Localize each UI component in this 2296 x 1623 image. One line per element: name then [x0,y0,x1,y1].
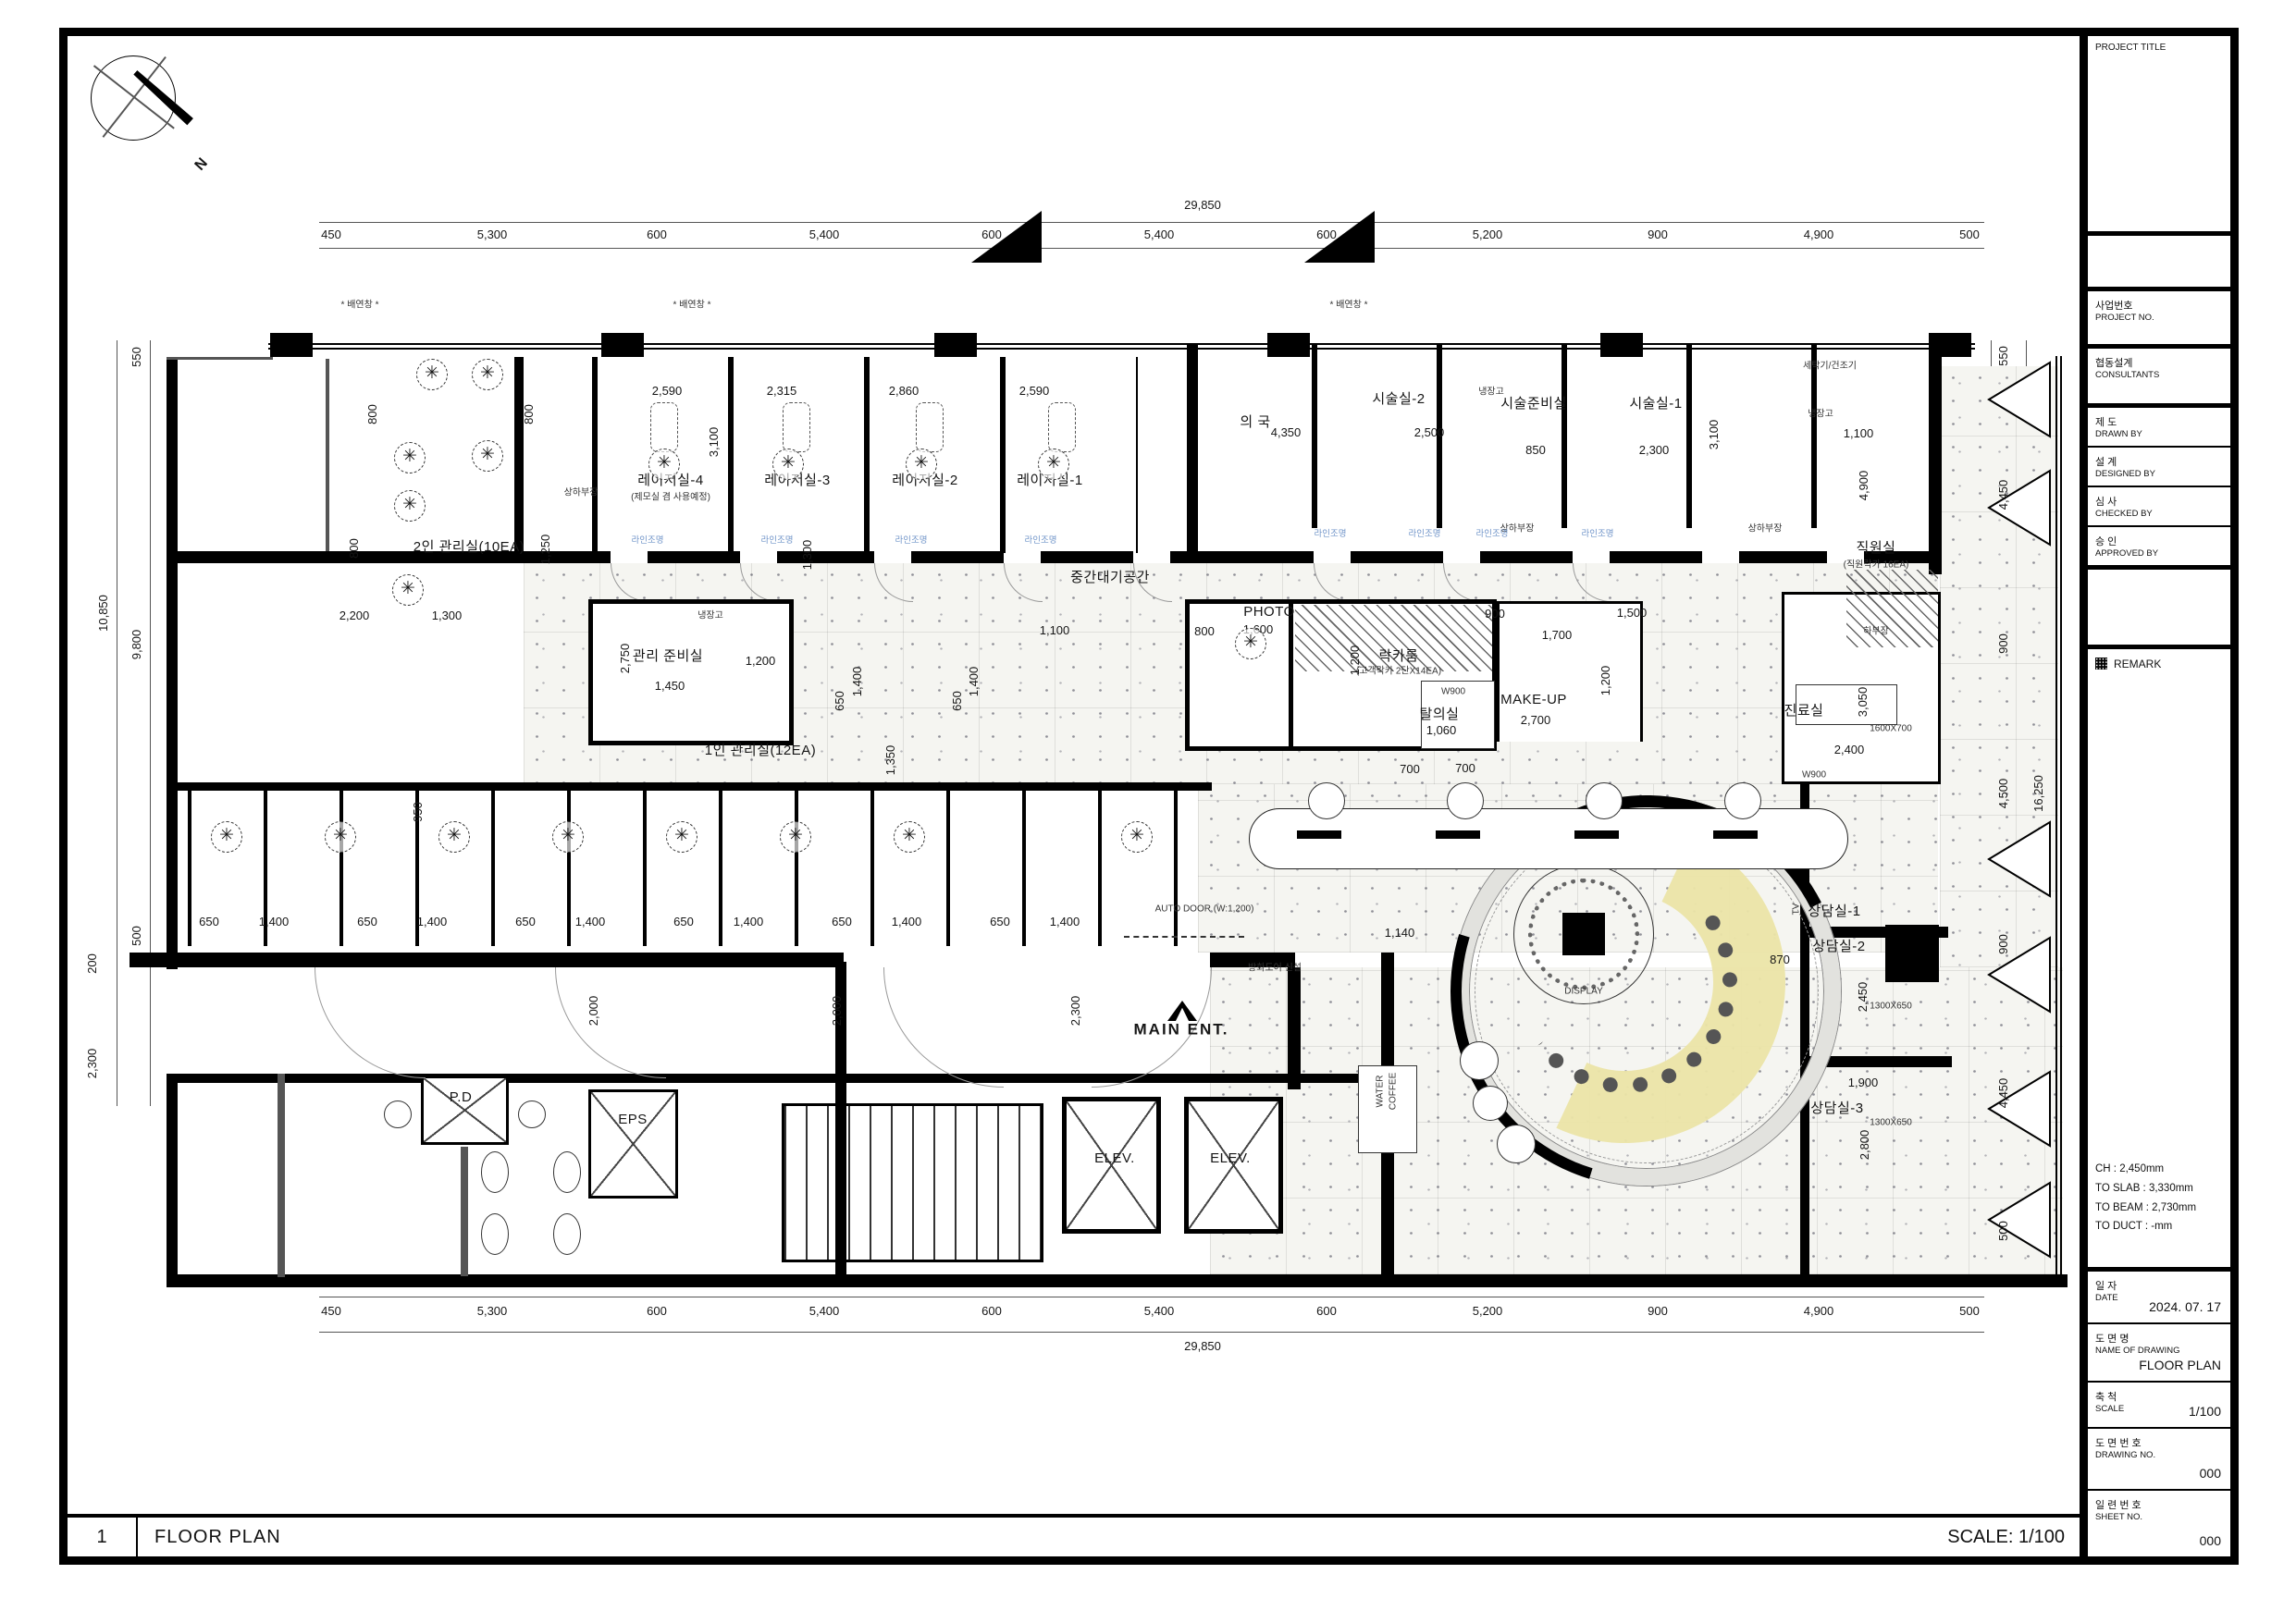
dim-label: 5,300 [477,228,508,241]
dim-label: 2,315 [767,385,797,398]
drawing-name-kr: 도 면 명 [2095,1331,2223,1346]
room-label: 시술실-2 [1372,392,1425,408]
dim-label: 2,450 [1857,982,1870,1013]
ceiling-fan-icon: ✳ [906,449,937,480]
floor-plan-sheet: N [0,0,2296,1623]
dim-label: 1,200 [1349,646,1362,676]
drawing-no-en: DRAWING NO. [2095,1450,2223,1460]
dim-label: TV [1792,904,1802,916]
dim-label: 1,300 [801,540,814,571]
sheet-no-value: 000 [2200,1533,2221,1548]
dim-label: 9,800 [130,630,143,660]
dim-label: 850 [1525,444,1546,457]
bottom-title-bar: 1 FLOOR PLAN SCALE: 1/100 [68,1514,2080,1556]
dim-label: 1,400 [968,667,981,697]
drawing-no-value: 000 [2200,1466,2221,1481]
dim-label: 5,400 [1144,1305,1175,1318]
dim-label: COFFEE [1389,1073,1399,1111]
drawing-no-kr: 도 면 번 호 [2095,1435,2223,1450]
dim-label: 3,100 [708,427,721,458]
drawing-scale: SCALE: 1/100 [1947,1527,2065,1548]
dim-label: 1,450 [655,680,685,693]
dim-label: 하부장 [1863,627,1889,637]
dim-label: 650 [515,916,536,928]
dim-label: AUTO DOOR (W:1,200) [1155,904,1254,915]
dim-label: 1,350 [884,745,897,776]
dim-label: 상하부장 [564,488,599,498]
project-title-label: PROJECT TITLE [2095,43,2223,53]
ceiling-fan-icon: ✳ [211,821,242,853]
dim-label: 상하부장 [1748,524,1783,535]
designed-by-en: DESIGNED BY [2095,469,2223,479]
approved-by-kr: 승 인 [2095,534,2223,548]
room-label: MAKE-UP [1500,693,1567,708]
dim-label: 800 [366,404,379,424]
dim-label: 600 [1316,228,1337,241]
room-label: 1인 관리실(12EA) [705,744,816,759]
ceiling-fan-icon: ✳ [1121,821,1153,853]
scale-value: 1/100 [2189,1404,2221,1419]
dim-label: 29,850 [1184,199,1221,212]
dim-label: 5,400 [809,1305,840,1318]
project-title-cell: PROJECT TITLE [2088,36,2230,236]
dim-label: 1,700 [1542,629,1573,642]
ceiling-fan-icon: ✳ [666,821,697,853]
dim-label: WATER [1376,1076,1386,1108]
designed-by-cell: 설 계 DESIGNED BY [2088,448,2230,487]
dim-label: 2,590 [1019,385,1050,398]
dim-label: 라인조명 [1582,530,1614,539]
dim-label: 10,850 [97,595,110,632]
dim-label: 라인조명 [1476,530,1509,539]
dim-label: 29,850 [1184,1340,1221,1353]
dim-label: 라인조명 [1315,530,1347,539]
drawing-name-cell: 도 면 명 NAME OF DRAWING FLOOR PLAN [2088,1324,2230,1383]
title-block: PROJECT TITLE 사업번호 PROJECT NO. 협동설계 CONS… [2080,36,2230,1556]
room-label: 상담실-1 [1808,904,1860,920]
note-ch: CH : 2,450mm [2095,1160,2223,1179]
dim-label: 900 [1485,608,1505,621]
dim-label: 라인조명 [1409,530,1441,539]
dim-label: 1,100 [1844,427,1874,440]
room-label: PHOTO [1243,605,1295,621]
dim-label: 1300X650 [1870,1118,1912,1128]
dim-label: 1,200 [746,655,776,668]
dim-label: 800 [348,538,361,559]
note-duct: TO DUCT : -mm [2095,1217,2223,1236]
date-value: 2024. 07. 17 [2149,1299,2221,1314]
remark-cell: REMARK CH : 2,450mm TO SLAB : 3,330mm TO… [2088,649,2230,1272]
dim-label: 500 [130,926,143,946]
dim-label: 5,200 [1473,1305,1503,1318]
dim-label: (고객락카 2단X14EA) [1356,667,1441,677]
drawn-by-cell: 제 도 DRAWN BY [2088,408,2230,448]
dim-label: 2,000 [587,996,600,1027]
ceiling-fan-icon: ✳ [392,574,424,606]
designed-by-kr: 설 계 [2095,454,2223,469]
dim-label: 4,500 [1997,779,2010,809]
sheet-no-cell: 일 련 번 호 SHEET NO. 000 [2088,1491,2230,1556]
drawn-by-kr: 제 도 [2095,414,2223,429]
room-label: P.D [450,1090,473,1106]
dim-label: 1,500 [1617,607,1648,620]
dim-label: 600 [1316,1305,1337,1318]
dim-label: 4,450 [1997,1078,2010,1109]
scale-cell: 축 척 SCALE 1/100 [2088,1383,2230,1429]
approved-by-en: APPROVED BY [2095,548,2223,559]
dim-label: DISPLAY [1564,987,1603,997]
room-label: 2인 관리실(10EA) [414,540,525,556]
dim-label: * 배연창 * [1330,301,1368,311]
ceiling-fan-icon: ✳ [772,449,804,480]
remark-label: REMARK [2114,658,2161,670]
date-kr: 일 자 [2095,1278,2223,1293]
dim-label: 500 [1997,1221,2010,1241]
dim-label: 650 [673,916,694,928]
room-label: 상담실-3 [1810,1101,1863,1117]
room-label: 진료실 [1784,704,1824,719]
dim-label: 700 [1400,763,1420,776]
dim-label: 2,750 [619,644,632,674]
room-label: ELEV. [1210,1151,1251,1167]
dim-label: 600 [647,228,667,241]
dim-label: 5,200 [1473,228,1503,241]
drawn-by-en: DRAWN BY [2095,429,2223,439]
remark-icon [2095,658,2107,670]
dim-label: 4,900 [1804,1305,1834,1318]
dim-label: 870 [1770,953,1790,966]
dim-label: 방화도어 신설 [1248,964,1302,974]
checked-by-en: CHECKED BY [2095,509,2223,519]
dim-label: 650 [951,691,964,711]
room-label: ELEV. [1094,1151,1135,1167]
dim-label: 900 [1648,1305,1668,1318]
dim-label: W900 [1441,687,1465,697]
dim-label: 200 [86,953,99,974]
ceiling-fan-icon: ✳ [394,490,426,522]
room-label: EPS [618,1113,648,1128]
height-notes: CH : 2,450mm TO SLAB : 3,330mm TO BEAM :… [2095,1160,2223,1260]
dim-label: 라인조명 [632,536,664,546]
dim-label: 2,300 [86,1049,99,1079]
blank-cell [2088,236,2230,291]
dim-label: 700 [1455,762,1475,775]
dim-label: 냉장고 [1478,387,1504,398]
dim-label: 4,450 [1997,480,2010,510]
ceiling-fan-icon: ✳ [472,440,503,472]
room-label: 락카룸 [1379,649,1419,665]
dim-label: 1,900 [1848,1076,1879,1089]
dim-label: 세탁기/건조기 [1803,362,1857,372]
project-no-cell: 사업번호 PROJECT NO. [2088,291,2230,349]
room-label: 의 국 [1240,415,1270,431]
dim-label: 800 [523,404,536,424]
ceiling-fan-icon: ✳ [394,442,426,473]
dim-label: 4,900 [1858,471,1870,501]
dim-label: 800 [1194,625,1215,638]
room-label: 탈의실 [1420,707,1460,723]
dim-label: 1,400 [851,667,864,697]
approved-by-cell: 승 인 APPROVED BY [2088,527,2230,570]
consultants-cell: 협동설계 CONSULTANTS [2088,349,2230,408]
drawing-name-value: FLOOR PLAN [2139,1358,2221,1372]
dim-label: 1,200 [1599,666,1612,696]
room-label: 관리 준비실 [633,649,703,665]
dim-label: 3,100 [1708,420,1721,450]
dim-label: 2,200 [339,609,370,622]
dim-label: 1,300 [432,609,463,622]
dim-label: 1,400 [1050,916,1080,928]
drawing-number-cell: 1 [68,1518,138,1556]
dim-label: 650 [199,916,219,928]
consultants-kr: 협동설계 [2095,355,2223,370]
dim-label: 5,400 [1144,228,1175,241]
dim-label: 1,400 [259,916,290,928]
dim-label: 1300X650 [1870,1002,1912,1012]
dim-label: 5,400 [809,228,840,241]
ceiling-fan-icon: ✳ [552,821,584,853]
dim-label: 600 [647,1305,667,1318]
dim-label: 4,900 [1804,228,1834,241]
plan-labels: 29,8504505,3006005,4006005,4006005,20090… [0,0,2296,1623]
room-label: 시술준비실 [1500,397,1567,412]
dim-label: 냉장고 [697,611,723,621]
room-label: MAIN ENT. [1134,1022,1229,1039]
consultants-en: CONSULTANTS [2095,370,2223,380]
project-no-en: PROJECT NO. [2095,313,2223,323]
dim-label: 16,250 [2032,775,2045,812]
dim-label: 1,400 [417,916,448,928]
room-label: 직원실 [1857,541,1896,557]
dim-label: (직원락카 16EA) [1844,560,1909,571]
sheet-no-kr: 일 련 번 호 [2095,1497,2223,1512]
ceiling-fan-icon: ✳ [1038,449,1069,480]
dim-label: 900 [1997,934,2010,954]
dim-label: 600 [981,1305,1002,1318]
dim-label: 라인조명 [895,536,928,546]
dim-label: 2,590 [652,385,683,398]
scale-kr: 축 척 [2095,1389,2223,1404]
dim-label: 450 [321,228,341,241]
dim-label: 2,700 [1521,714,1551,727]
drawing-name-en: NAME OF DRAWING [2095,1346,2223,1356]
note-beam: TO BEAM : 2,730mm [2095,1199,2223,1218]
sheet-no-en: SHEET NO. [2095,1512,2223,1522]
note-slab: TO SLAB : 3,330mm [2095,1179,2223,1199]
ceiling-fan-icon: ✳ [780,821,811,853]
dim-label: 냉장고 [1808,410,1833,420]
dim-label: 550 [1997,346,2010,366]
drawing-no-cell: 도 면 번 호 DRAWING NO. 000 [2088,1429,2230,1491]
ceiling-fan-icon: ✳ [894,821,925,853]
ceiling-fan-icon: ✳ [1235,628,1266,659]
dim-label: * 배연창 * [341,301,379,311]
dim-label: 2,860 [889,385,920,398]
dim-label: 4,350 [1271,426,1302,439]
dim-label: 1,400 [575,916,606,928]
dim-label: 2,800 [1858,1130,1871,1161]
dim-label: W900 [1802,770,1826,781]
dim-label: 950 [412,802,425,822]
dim-label: 2,500 [1414,426,1445,439]
dim-label: (제모실 겸 사용예정) [631,493,710,503]
dim-label: 600 [981,228,1002,241]
dim-label: 2,300 [1069,996,1082,1027]
dim-label: 1,250 [539,535,552,565]
dim-label: 900 [1648,228,1668,241]
dim-label: 라인조명 [1025,536,1057,546]
dim-label: 1,400 [892,916,922,928]
dim-label: 5,300 [477,1305,508,1318]
dim-label: * 배연창 * [673,301,711,311]
room-label: 시술실-1 [1629,397,1682,412]
dim-label: 900 [1997,633,2010,654]
dim-label: 650 [357,916,377,928]
drawing-title: FLOOR PLAN [154,1527,281,1548]
ceiling-fan-icon: ✳ [325,821,356,853]
dim-label: 650 [833,691,846,711]
dim-label: 550 [130,347,143,367]
ceiling-fan-icon: ✳ [416,359,448,390]
checked-by-kr: 심 사 [2095,494,2223,509]
dim-label: 500 [1959,228,1980,241]
dim-label: 3,050 [1857,687,1870,718]
dim-label: 1,400 [734,916,764,928]
checked-by-cell: 심 사 CHECKED BY [2088,487,2230,527]
dim-label: 2,300 [1639,444,1670,457]
dim-label: 500 [1959,1305,1980,1318]
dim-label: 1,140 [1385,927,1415,940]
date-cell: 일 자 DATE 2024. 07. 17 [2088,1272,2230,1324]
dim-label: 650 [832,916,852,928]
ceiling-fan-icon: ✳ [438,821,470,853]
dim-label: 라인조명 [761,536,794,546]
dim-label: 2,000 [831,996,844,1027]
room-label: 상담실-2 [1812,940,1865,955]
dim-label: 1,100 [1040,624,1070,637]
dim-label: 1600X700 [1870,724,1912,734]
dim-label: 2,400 [1834,744,1865,756]
dim-label: 1,060 [1426,724,1457,737]
project-no-kr: 사업번호 [2095,298,2223,313]
ceiling-fan-icon: ✳ [648,449,680,480]
dim-label: 450 [321,1305,341,1318]
dim-label: 650 [990,916,1010,928]
ceiling-fan-icon: ✳ [472,359,503,390]
blank-cell [2088,570,2230,649]
room-label: 중간대기공간 [1070,571,1150,586]
